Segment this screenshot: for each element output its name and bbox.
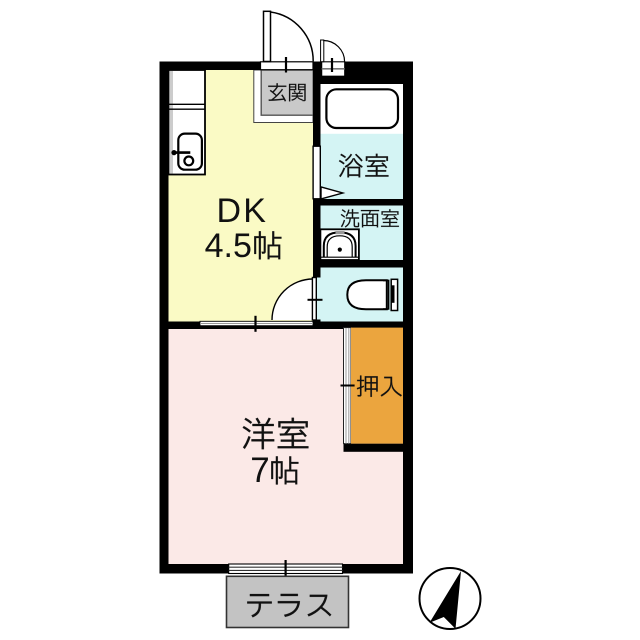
svg-text:4.5: 4.5	[205, 227, 252, 265]
svg-text:7: 7	[250, 451, 269, 490]
svg-text:DK: DK	[216, 192, 268, 230]
